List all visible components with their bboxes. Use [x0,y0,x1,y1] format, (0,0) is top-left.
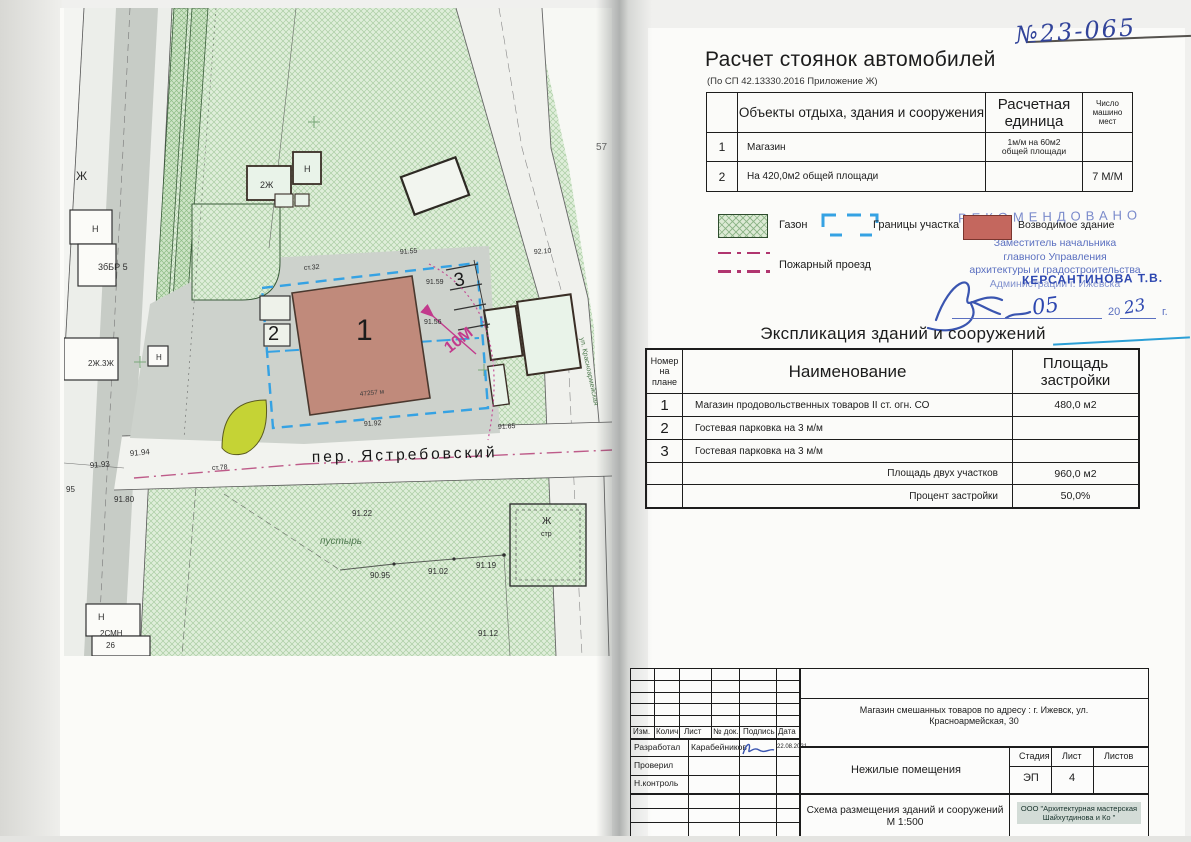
row-name: Гостевая парковка на 3 м/м [683,440,1013,463]
map-label: 91.93 [89,459,110,470]
map-label: ст.78 [212,464,228,472]
scanned-drawing-sheet: 1 2 3 10М пер. Ястребовский ул. Красноар… [0,0,1191,842]
total-value: 960,0 м2 [1013,463,1138,485]
sheet-label: Лист [1062,751,1082,761]
row-num: 2 [707,162,738,191]
cell [647,463,683,485]
col-header-unit: Расчетнаяединица [986,93,1083,133]
dev-signature [739,738,776,758]
row-count [1083,133,1132,162]
map-label: 90.95 [370,571,391,580]
row-area [1013,417,1138,440]
scan-shadow-left [0,0,62,842]
col-podpis: Подпись [743,727,775,736]
sheet-value: 4 [1069,772,1075,784]
col-data: Дата [778,727,796,736]
row-area: 480,0 м2 [1013,394,1138,417]
row-object: На 420,0м2 общей площади [738,162,986,191]
row-name: Магазин продовольственных товаров II ст.… [683,394,1013,417]
row-unit: 1м/м на 60м2общей площади [986,133,1083,162]
fire-icon [718,252,770,273]
row-num: 1 [647,394,683,417]
lawn-label: Газон [779,219,807,231]
map-label: ст.32 [304,264,320,272]
percent-value: 50,0% [1013,485,1138,507]
building-label: Возводимое здание [1018,219,1114,231]
percent-label: Процент застройки [683,485,1013,507]
sheets-label: Листов [1104,751,1133,761]
map-label: 2Ж [260,180,274,190]
title-block: Изм. Колич. Лист № док. Подпись Дата Раз… [630,668,1149,838]
parking-table: Объекты отдыха, здания и сооружения Расч… [706,92,1133,192]
map-label: 91.65 [498,423,516,431]
col-kolich: Колич. [656,727,680,736]
col-list: Лист [684,727,701,736]
drawing-name: Схема размещения зданий и сооружений М 1… [803,805,1007,829]
ncontrol-label: Н.контроль [634,778,678,788]
explication-title: Экспликация зданий и сооружений [703,324,1103,344]
col-izm: Изм. [633,727,650,736]
map-label: Н [98,612,105,622]
map-label: Н [92,224,99,234]
col-header-count: Числомашиномест [1083,93,1132,133]
row-num: 3 [647,440,683,463]
map-label: 95 [66,485,75,494]
col-header-object: Объекты отдыха, здания и сооружения [738,93,986,133]
stage-label: Стадия [1019,751,1050,761]
project-name: Магазин смешанных товаров по адресу : г.… [809,705,1139,727]
map-label: 92.10 [534,248,552,256]
stamp-year-prefix: 20 [1108,306,1120,318]
stamp-date-line [952,318,1102,319]
dev-label: Разработал [634,742,680,752]
company-name: ООО "Архитектурная мастерская Шайхутдино… [1017,802,1141,824]
row-num: 1 [707,133,738,162]
map-label: 91.56 [424,319,442,326]
row-num: 2 [647,417,683,440]
signature [922,262,1042,332]
map-label: Н [304,164,311,174]
lawn-swatch [718,214,768,238]
col-header-name: Наименование [683,350,1013,394]
parking-subtitle: (По СП 42.13330.2016 Приложение Ж) [707,76,878,87]
map-label: 91.02 [428,567,449,576]
cell [647,485,683,507]
row-count: 7 М/М [1083,162,1132,191]
scan-shadow-bottom [0,836,1191,842]
building-swatch [963,215,1012,240]
parking-title: Расчет стоянок автомобилей [705,48,996,72]
row-name: Гостевая парковка на 3 м/м [683,417,1013,440]
map-label: 3бБР 5 [98,262,128,272]
stamp-date-month: 05 [1030,292,1060,319]
col-ndok: № док. [713,727,739,736]
map-label: 2СМН [100,629,123,638]
plan-number-2: 2 [268,323,279,345]
stamp-year-suffix: г. [1162,306,1168,318]
plan-number-1: 1 [356,314,373,347]
map-label: 91.22 [352,509,373,518]
col-header-area: Площадьзастройки [1013,350,1138,394]
map-label: пустырь [320,536,362,547]
total-label: Площадь двух участков [683,463,1013,485]
stamp-name: КЕРСАНТИНОВА Т.В. [1022,271,1163,287]
fire-label: Пожарный проезд [779,259,871,271]
map-label: 91.19 [476,561,497,570]
site-plan-map: 1 2 3 10М пер. Ястребовский ул. Красноар… [64,8,612,656]
row-unit [986,162,1083,191]
map-label: 91.59 [426,279,444,286]
stamp-year-hand: 23 [1122,295,1147,318]
row-object: Магазин [738,133,986,162]
row-area [1013,440,1138,463]
map-label: 91.94 [129,447,150,458]
map-label: 91.12 [478,629,499,638]
map-label: Н [156,353,162,362]
map-label: 91.80 [114,495,135,504]
map-label: Ж [76,169,87,183]
boundary-icon [820,211,880,239]
boundary-label: Границы участка [873,219,959,231]
cell [707,93,738,133]
map-label: 91.55 [400,248,418,256]
check-label: Проверил [634,760,673,770]
object-name: Нежилые помещения [811,764,1001,776]
stamp-year-line [1120,318,1156,319]
map-label: 91.92 [364,420,382,428]
explication-table: Номернаплане Наименование Площадьзастрой… [645,348,1140,509]
map-label: 26 [106,641,115,650]
stage-value: ЭП [1023,772,1039,784]
dev-date: 22.08.2021 [777,744,807,750]
map-label: Ж [542,516,552,527]
map-label: стр [541,531,552,538]
col-header-num: Номернаплане [647,350,683,394]
map-label: 2Ж.3Ж [88,359,115,368]
lawn-parcel [192,204,280,300]
